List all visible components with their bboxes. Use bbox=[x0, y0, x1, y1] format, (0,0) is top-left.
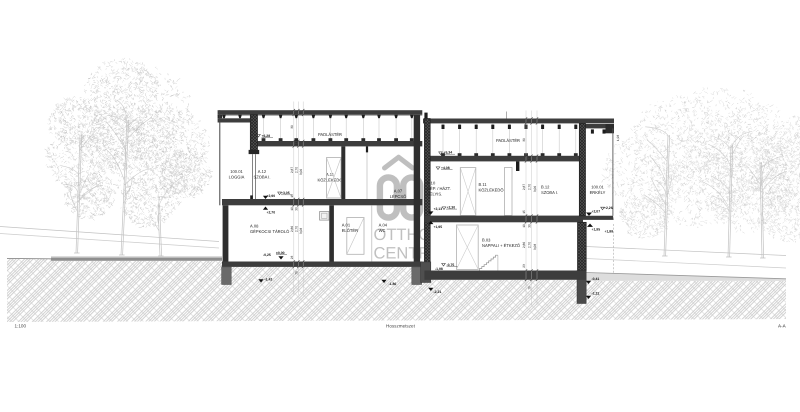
svg-text:SZOBA I.: SZOBA I. bbox=[541, 190, 558, 195]
svg-text:75: 75 bbox=[528, 286, 532, 290]
svg-text:SZOBA I.: SZOBA I. bbox=[253, 175, 270, 180]
svg-text:-0,41: -0,41 bbox=[592, 277, 600, 281]
svg-text:-2,21: -2,21 bbox=[592, 292, 600, 296]
svg-text:+5,34: +5,34 bbox=[444, 151, 453, 155]
svg-text:B.12: B.12 bbox=[541, 185, 550, 190]
svg-text:LOGGIA: LOGGIA bbox=[229, 175, 245, 180]
svg-text:23: 23 bbox=[290, 256, 294, 260]
svg-text:-2,21: -2,21 bbox=[434, 290, 442, 294]
svg-text:15: 15 bbox=[522, 210, 526, 214]
svg-text:+3,05: +3,05 bbox=[281, 191, 290, 195]
svg-text:1,98: 1,98 bbox=[616, 135, 620, 141]
svg-text:GÉP. / HÁZT.: GÉP. / HÁZT. bbox=[427, 186, 451, 191]
svg-text:3,06: 3,06 bbox=[533, 186, 537, 192]
svg-text:±0,00: ±0,00 bbox=[276, 251, 285, 255]
svg-text:+2,07: +2,07 bbox=[592, 210, 601, 214]
svg-text:2,87: 2,87 bbox=[522, 184, 526, 190]
svg-text:A.07: A.07 bbox=[394, 189, 403, 194]
svg-text:KÖZLEKEDŐ: KÖZLEKEDŐ bbox=[317, 178, 342, 183]
svg-text:NAPPALI + ÉTKEZŐ: NAPPALI + ÉTKEZŐ bbox=[482, 243, 520, 248]
svg-text:10: 10 bbox=[290, 207, 294, 211]
svg-text:+2,90: +2,90 bbox=[267, 194, 276, 198]
svg-text:A.04: A.04 bbox=[379, 223, 388, 228]
svg-text:2,86: 2,86 bbox=[290, 226, 294, 232]
svg-text:3,08: 3,08 bbox=[299, 228, 303, 234]
svg-text:A.01: A.01 bbox=[342, 223, 351, 228]
svg-text:KÖZLEKEDŐ: KÖZLEKEDŐ bbox=[479, 188, 504, 193]
svg-text:+2,13: +2,13 bbox=[434, 207, 443, 211]
svg-text:-0,25: -0,25 bbox=[263, 253, 271, 257]
svg-text:+2,26: +2,26 bbox=[604, 206, 613, 210]
svg-text:14: 14 bbox=[294, 142, 298, 146]
svg-text:-1,86: -1,86 bbox=[389, 282, 397, 286]
svg-text:Hosszmetszet: Hosszmetszet bbox=[386, 324, 416, 329]
svg-text:B.10: B.10 bbox=[427, 181, 436, 186]
svg-text:+1,88: +1,88 bbox=[605, 230, 614, 234]
svg-text:PADLÁSTÉR: PADLÁSTÉR bbox=[496, 138, 520, 143]
svg-text:10: 10 bbox=[522, 224, 526, 228]
svg-text:100.01: 100.01 bbox=[591, 185, 604, 190]
svg-text:14: 14 bbox=[528, 157, 532, 161]
svg-text:GÉPKOCSI TÁROLÓ: GÉPKOCSI TÁROLÓ bbox=[250, 229, 289, 234]
svg-text:ELŐTÉR: ELŐTÉR bbox=[342, 228, 358, 233]
svg-text:15: 15 bbox=[290, 194, 294, 198]
svg-text:B.03: B.03 bbox=[482, 238, 491, 243]
svg-text:A-A: A-A bbox=[778, 324, 787, 329]
svg-text:+2,70: +2,70 bbox=[267, 211, 276, 215]
svg-text:+1,95: +1,95 bbox=[434, 225, 443, 229]
svg-text:75: 75 bbox=[294, 271, 298, 275]
svg-text:2,70: 2,70 bbox=[528, 242, 532, 248]
svg-text:+1,95: +1,95 bbox=[592, 228, 601, 232]
svg-text:B.11: B.11 bbox=[479, 182, 488, 187]
svg-text:30: 30 bbox=[522, 138, 526, 142]
svg-text:30: 30 bbox=[528, 224, 532, 228]
svg-text:3,08: 3,08 bbox=[533, 244, 537, 250]
svg-text:2,70: 2,70 bbox=[528, 184, 532, 190]
svg-text:2,70: 2,70 bbox=[294, 167, 298, 173]
svg-text:HELYIS.: HELYIS. bbox=[427, 192, 442, 197]
svg-text:30: 30 bbox=[294, 207, 298, 211]
svg-text:2,70: 2,70 bbox=[294, 226, 298, 232]
svg-text:3,06: 3,06 bbox=[299, 169, 303, 175]
svg-text:A.12: A.12 bbox=[258, 169, 267, 174]
svg-text:A.08: A.08 bbox=[250, 224, 259, 229]
svg-text:2,87: 2,87 bbox=[290, 167, 294, 173]
svg-text:LÉPCSŐ: LÉPCSŐ bbox=[390, 194, 407, 199]
svg-text:30: 30 bbox=[290, 125, 294, 129]
svg-text:-1,42: -1,42 bbox=[265, 278, 273, 282]
svg-text:23: 23 bbox=[522, 264, 526, 268]
svg-text:WC: WC bbox=[379, 228, 386, 233]
svg-text:PADLÁSTÉR: PADLÁSTÉR bbox=[318, 132, 342, 137]
svg-text:+2,30: +2,30 bbox=[447, 206, 456, 210]
svg-text:2,86: 2,86 bbox=[522, 242, 526, 248]
svg-text:+6,28: +6,28 bbox=[262, 134, 271, 138]
svg-text:100.01: 100.01 bbox=[230, 169, 243, 174]
svg-text:-1,98: -1,98 bbox=[435, 267, 443, 271]
svg-text:ERKÉLY: ERKÉLY bbox=[590, 190, 606, 195]
svg-text:1:100: 1:100 bbox=[15, 324, 27, 329]
